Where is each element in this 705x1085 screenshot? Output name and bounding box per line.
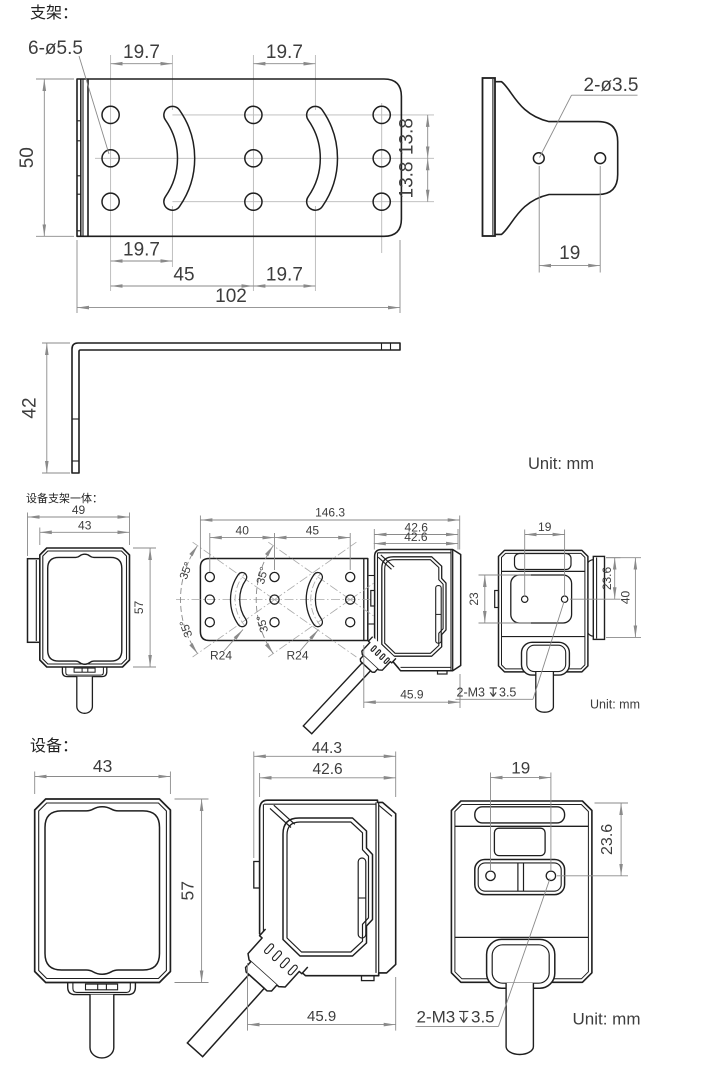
svg-text:Unit: mm: Unit: mm	[573, 1010, 641, 1029]
svg-text:45: 45	[173, 265, 194, 286]
svg-text:3.5: 3.5	[471, 1008, 495, 1027]
svg-text:13.8: 13.8	[397, 162, 418, 199]
svg-text:3.5: 3.5	[499, 686, 516, 700]
svg-text:23.6: 23.6	[599, 824, 616, 855]
svg-text:13.8: 13.8	[397, 118, 418, 155]
svg-text:57: 57	[132, 601, 146, 615]
svg-text:设备：: 设备：	[30, 737, 78, 755]
svg-text:45.9: 45.9	[400, 688, 424, 702]
svg-text:6-ø5.5: 6-ø5.5	[28, 38, 83, 59]
svg-text:R24: R24	[287, 649, 309, 663]
svg-text:42.6: 42.6	[404, 530, 428, 544]
svg-text:2-ø3.5: 2-ø3.5	[584, 75, 639, 96]
svg-text:19.7: 19.7	[123, 240, 160, 261]
svg-text:19.7: 19.7	[266, 265, 303, 286]
svg-text:49: 49	[72, 503, 86, 517]
svg-text:设备支架一体：: 设备支架一体：	[26, 491, 103, 505]
svg-text:支架：: 支架：	[30, 4, 78, 22]
svg-text:23: 23	[467, 592, 481, 606]
svg-text:44.3: 44.3	[312, 740, 342, 757]
svg-text:42.6: 42.6	[313, 761, 343, 778]
svg-text:19: 19	[511, 758, 530, 777]
svg-text:43: 43	[93, 756, 112, 776]
svg-text:40: 40	[236, 523, 250, 537]
svg-text:102: 102	[215, 286, 247, 307]
svg-text:Unit: mm: Unit: mm	[528, 455, 594, 473]
svg-text:19: 19	[559, 243, 580, 264]
svg-text:43: 43	[78, 518, 92, 532]
svg-text:19.7: 19.7	[123, 42, 160, 63]
svg-text:50: 50	[17, 147, 38, 168]
svg-text:23.6: 23.6	[600, 566, 614, 590]
svg-text:19: 19	[538, 520, 552, 534]
svg-text:Unit: mm: Unit: mm	[590, 698, 640, 712]
svg-text:45.9: 45.9	[307, 1008, 336, 1025]
svg-text:57: 57	[178, 881, 198, 900]
svg-text:45: 45	[306, 523, 320, 537]
svg-text:2-M3: 2-M3	[457, 686, 486, 700]
svg-text:40: 40	[619, 591, 633, 605]
svg-text:R24: R24	[210, 649, 232, 663]
svg-text:146.3: 146.3	[315, 506, 345, 520]
svg-text:42: 42	[20, 397, 41, 418]
svg-text:19.7: 19.7	[266, 42, 303, 63]
svg-text:2-M3: 2-M3	[417, 1008, 456, 1027]
